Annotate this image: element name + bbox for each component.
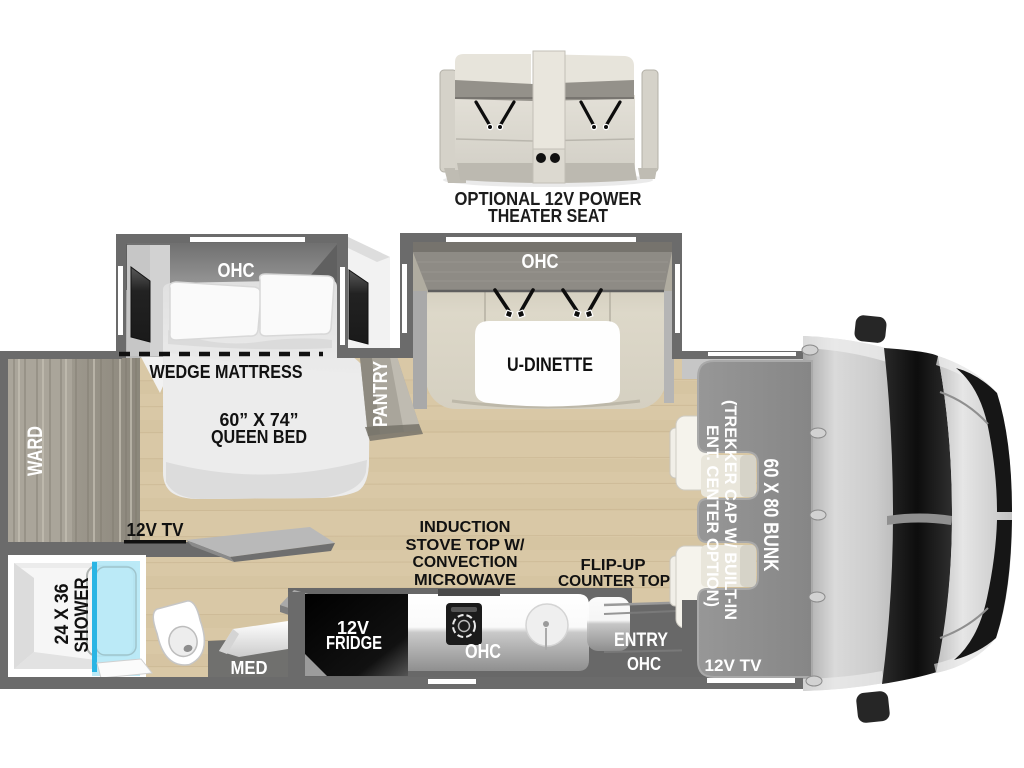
- svg-text:OHC: OHC: [627, 654, 661, 674]
- svg-text:FRIDGE: FRIDGE: [326, 633, 382, 653]
- svg-text:24 X 36: 24 X 36: [52, 584, 73, 645]
- svg-text:WEDGE MATTRESS: WEDGE MATTRESS: [150, 362, 303, 382]
- svg-text:COUNTER TOP: COUNTER TOP: [558, 573, 670, 590]
- svg-text:12V TV: 12V TV: [705, 656, 763, 675]
- svg-text:THEATER SEAT: THEATER SEAT: [488, 206, 608, 226]
- svg-text:OHC: OHC: [465, 641, 501, 663]
- svg-text:ENTRY: ENTRY: [614, 630, 668, 651]
- svg-text:U-DINETTE: U-DINETTE: [507, 355, 593, 376]
- svg-text:QUEEN BED: QUEEN BED: [211, 427, 307, 447]
- svg-text:OHC: OHC: [522, 251, 559, 273]
- svg-text:12V TV: 12V TV: [127, 520, 184, 540]
- svg-text:MED: MED: [231, 658, 268, 678]
- svg-text:MICROWAVE: MICROWAVE: [414, 572, 516, 589]
- svg-text:FLIP-UP: FLIP-UP: [581, 557, 646, 574]
- svg-text:CONVECTION: CONVECTION: [413, 554, 518, 571]
- svg-text:SHOWER: SHOWER: [72, 577, 93, 652]
- svg-text:PANTRY: PANTRY: [370, 360, 392, 427]
- svg-text:WARD: WARD: [24, 426, 47, 476]
- svg-text:(TREKKER CAP W/ BUILT-IN: (TREKKER CAP W/ BUILT-IN: [721, 400, 740, 620]
- svg-text:ENT. CENTER OPTION): ENT. CENTER OPTION): [703, 425, 722, 607]
- svg-text:60 X 80 BUNK: 60 X 80 BUNK: [759, 459, 782, 572]
- svg-text:OHC: OHC: [218, 260, 255, 282]
- svg-text:STOVE TOP W/: STOVE TOP W/: [406, 537, 526, 554]
- svg-text:INDUCTION: INDUCTION: [420, 519, 511, 536]
